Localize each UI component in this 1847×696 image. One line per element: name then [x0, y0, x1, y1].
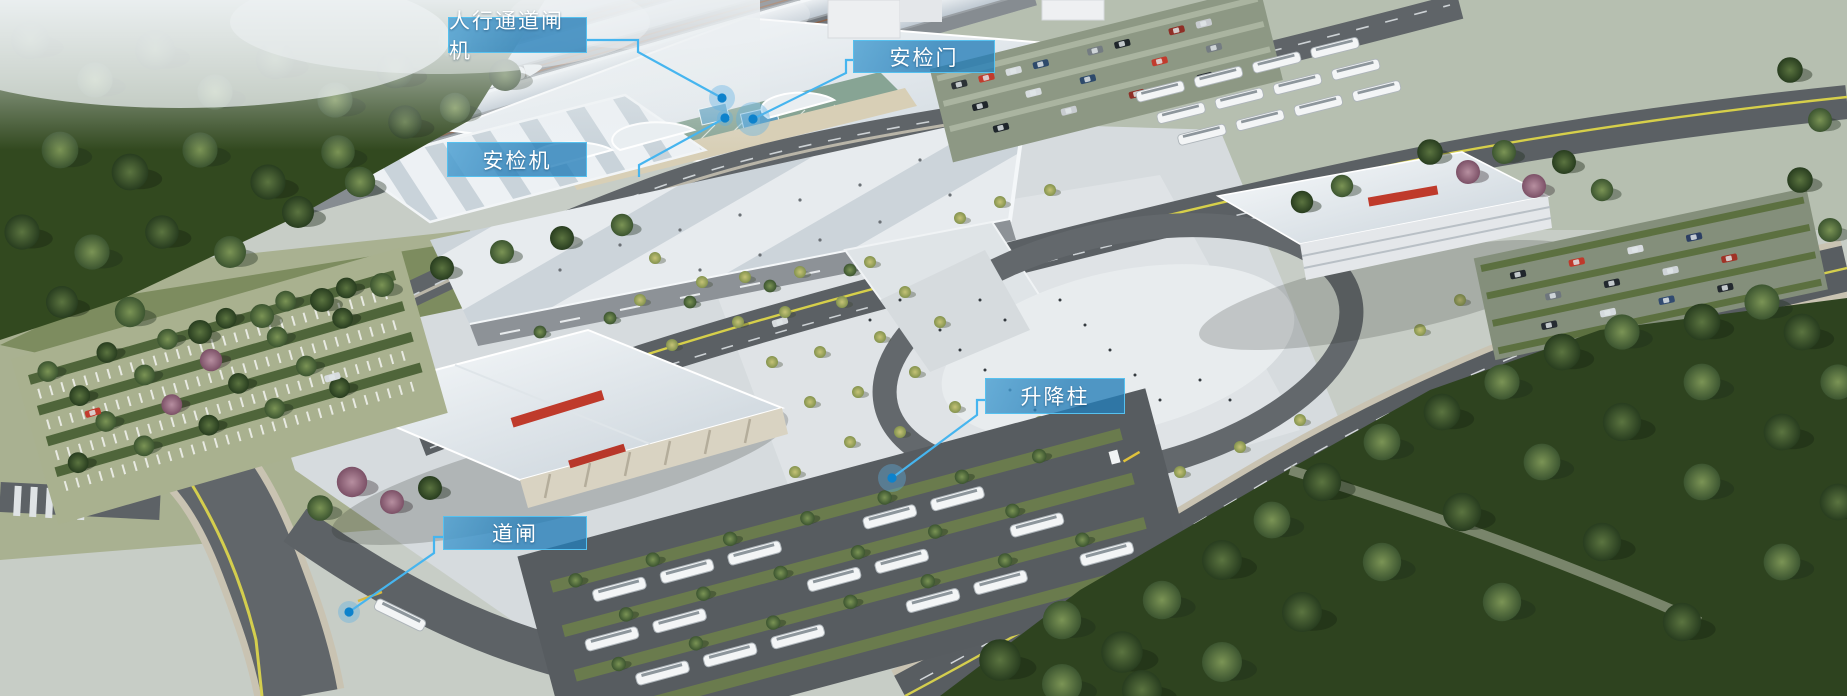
callout-barrier-gate[interactable]: 道闸: [443, 516, 587, 550]
callout-pedestrian-channel-gate[interactable]: 人行通道闸机: [448, 17, 587, 53]
station-aerial-banner: 人行通道闸机 安检门 安检机 升降柱 道闸: [0, 0, 1847, 696]
aerial-rendering: [0, 0, 1847, 696]
fog: [0, 0, 810, 150]
callout-lifting-bollard[interactable]: 升降柱: [985, 378, 1125, 414]
callout-security-scanner[interactable]: 安检机: [447, 142, 587, 177]
callout-security-door[interactable]: 安检门: [853, 40, 995, 73]
